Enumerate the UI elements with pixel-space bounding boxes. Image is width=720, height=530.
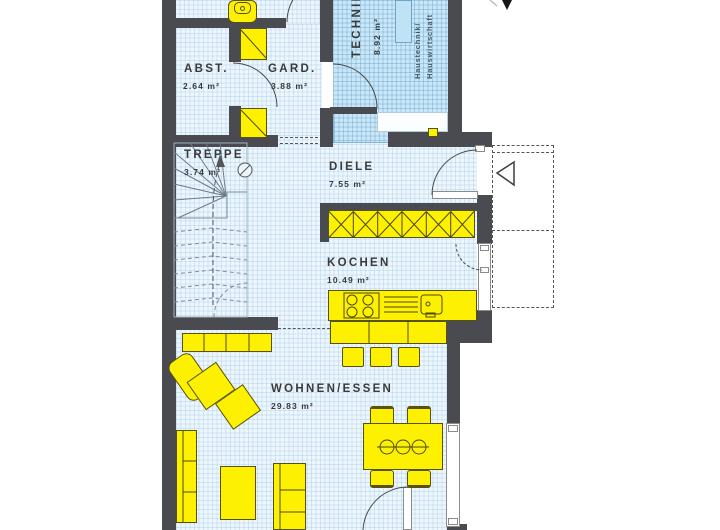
bar-stool-1 xyxy=(342,347,364,367)
entrance-door-leaf xyxy=(432,191,478,199)
room-label-kochen: KOCHEN xyxy=(327,257,391,269)
wall-technik-bottom xyxy=(330,107,377,114)
kitchen-window-cap-bottom xyxy=(480,267,489,273)
room-area-technik: 8.92 m² xyxy=(372,18,382,55)
sofa-middle xyxy=(273,463,306,530)
wall-treppe-wohnen xyxy=(162,317,278,330)
kitchen-window-cap-top xyxy=(480,245,489,251)
entrance-door-hinge xyxy=(475,145,485,152)
north-arrow-icon xyxy=(502,0,512,10)
room-area-gard: 3.88 m² xyxy=(271,81,308,91)
living-window-cap-bottom xyxy=(448,518,458,525)
room-area-wohnen-essen: 29.83 m² xyxy=(271,401,314,411)
technik-note-line1: Haustechnik/ xyxy=(413,23,422,79)
dining-table xyxy=(363,423,443,470)
floor-plan: ABST. 2.64 m² GARD. 3.88 m² TECHNIK 8.92… xyxy=(0,0,720,530)
room-area-kochen: 10.49 m² xyxy=(327,275,370,285)
wall-upper-room-bottom xyxy=(162,18,286,28)
dining-chair-bottom-2 xyxy=(407,470,431,488)
bar-stool-2 xyxy=(370,347,392,367)
room-label-abst: ABST. xyxy=(184,63,229,75)
bar-stool-3 xyxy=(398,347,420,367)
room-label-treppe: TREPPE xyxy=(184,149,244,161)
wall-upper-right xyxy=(320,0,333,62)
neighbor-inner-dash2 xyxy=(492,230,554,231)
shelf-chip xyxy=(428,128,438,137)
room-label-wohnen-essen: WOHNEN/ESSEN xyxy=(271,383,393,395)
dining-chair-bottom-1 xyxy=(370,470,394,488)
living-window xyxy=(446,423,460,527)
wall-right-corner-step xyxy=(447,318,492,343)
wall-right-outer-upper xyxy=(448,0,462,132)
room-area-abst: 2.64 m² xyxy=(183,81,220,91)
living-window-cap-top xyxy=(448,425,458,432)
terrace-door-leaf xyxy=(403,487,412,530)
room-area-treppe: 3.74 m² xyxy=(184,167,221,177)
technik-note-line2: Hauswirtschaft xyxy=(425,14,434,79)
kitchen-counter xyxy=(328,290,477,321)
wall-left-outer xyxy=(162,0,176,530)
kitchen-window xyxy=(478,243,491,311)
sofa-left xyxy=(176,430,197,523)
room-label-technik: TECHNIK xyxy=(351,0,363,58)
technik-window xyxy=(395,0,412,43)
wc-toilet-dot xyxy=(240,6,245,11)
wardrobe-upper xyxy=(240,28,267,60)
coffee-table xyxy=(220,466,256,520)
room-area-diele: 7.55 m² xyxy=(329,179,366,189)
opening-treppe-wohnen-dash xyxy=(278,328,330,329)
kitchen-peninsula xyxy=(330,321,447,344)
wardrobe-lower xyxy=(240,108,267,138)
sideboard xyxy=(182,333,272,352)
neighbor-unit-outline xyxy=(492,145,554,308)
room-label-gard: GARD. xyxy=(268,63,317,75)
room-label-diele: DIELE xyxy=(329,161,374,173)
neighbor-inner-dash1 xyxy=(492,152,554,153)
kitchen-wall-cabinets xyxy=(328,210,475,238)
wall-living-right-upper xyxy=(447,343,460,423)
